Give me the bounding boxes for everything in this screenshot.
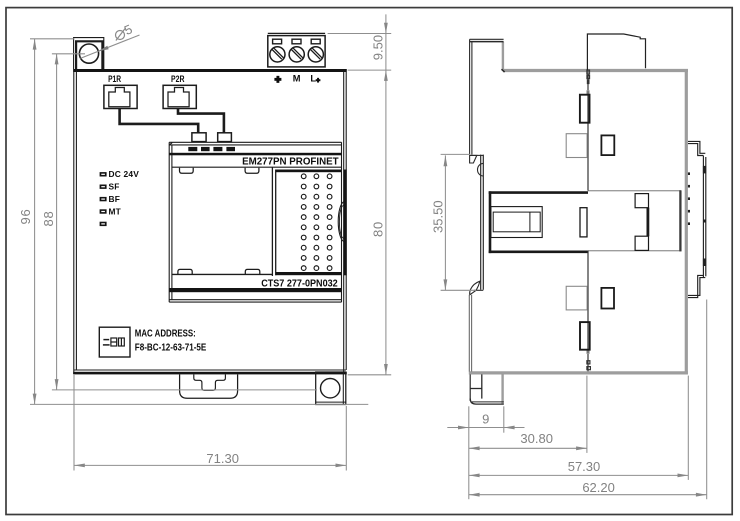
- svg-text:35.50: 35.50: [431, 200, 446, 233]
- svg-text:57.30: 57.30: [568, 459, 601, 474]
- svg-text:CTS7 277-0PN032: CTS7 277-0PN032: [261, 278, 338, 289]
- svg-text:BF: BF: [109, 194, 121, 204]
- svg-text:MT: MT: [109, 206, 122, 216]
- svg-text:M: M: [293, 73, 301, 83]
- svg-text:MAC ADDRESS:: MAC ADDRESS:: [135, 328, 196, 339]
- svg-text:DC 24V: DC 24V: [109, 169, 140, 179]
- svg-text:62.20: 62.20: [582, 480, 615, 495]
- svg-text:EM277PN PROFINET: EM277PN PROFINET: [242, 157, 339, 168]
- svg-text:30.80: 30.80: [520, 431, 553, 446]
- svg-text:L: L: [310, 73, 316, 83]
- svg-text:88: 88: [41, 210, 56, 226]
- svg-text:F8-BC-12-63-71-5E: F8-BC-12-63-71-5E: [135, 343, 207, 354]
- svg-text:SF: SF: [109, 182, 120, 192]
- svg-text:80: 80: [370, 221, 385, 237]
- svg-text:9.50: 9.50: [370, 35, 385, 60]
- svg-text:9: 9: [482, 411, 489, 426]
- svg-text:71.30: 71.30: [206, 451, 239, 466]
- svg-text:P1R: P1R: [108, 74, 121, 85]
- svg-text:P2R: P2R: [171, 74, 185, 85]
- svg-text:96: 96: [18, 208, 33, 224]
